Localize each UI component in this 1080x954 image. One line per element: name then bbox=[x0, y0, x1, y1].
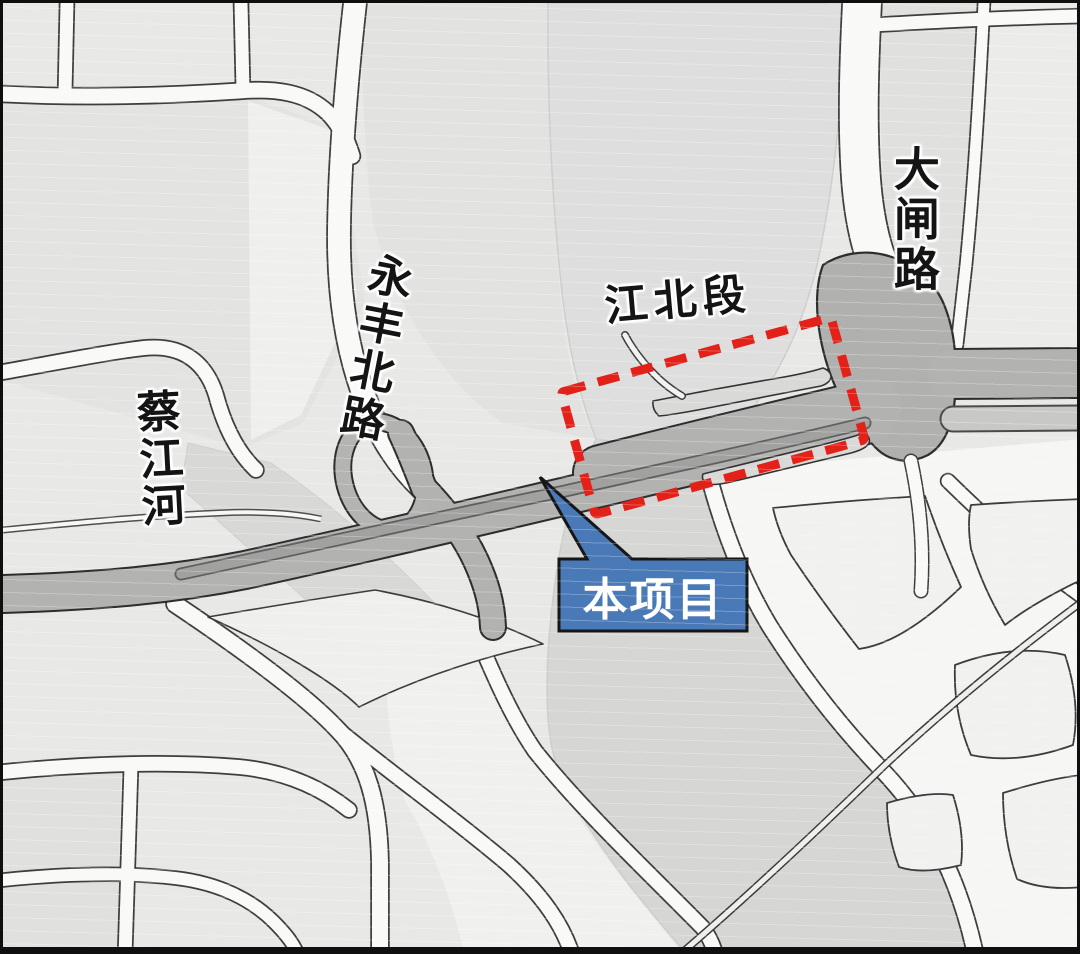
map-canvas bbox=[3, 3, 1080, 954]
location-map-figure: 蔡江河 永丰北路 江北段 大闸路 本项目 bbox=[0, 0, 1080, 954]
block-se-4 bbox=[1003, 775, 1080, 888]
block-bottom-left bbox=[3, 771, 121, 954]
east-arterial-road bbox=[951, 373, 1080, 374]
block-se-3 bbox=[955, 651, 1076, 759]
block-se-5 bbox=[887, 794, 962, 871]
